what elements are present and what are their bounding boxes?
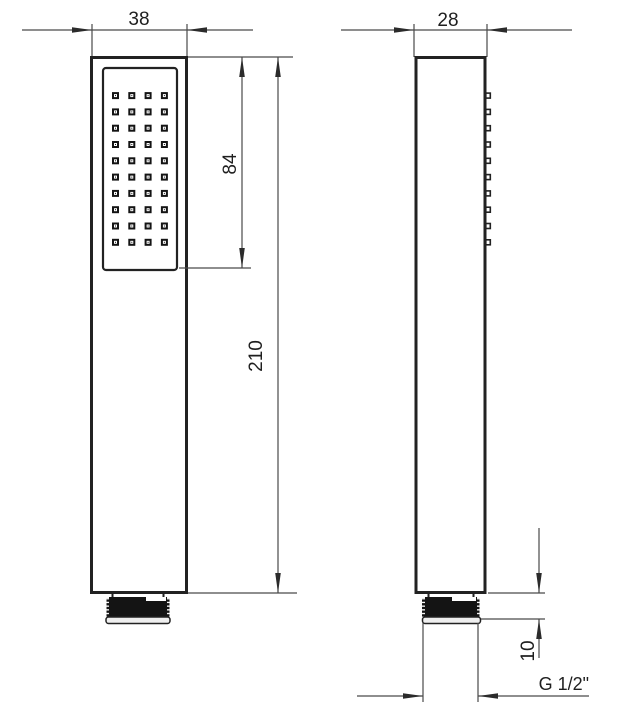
nozzle-center xyxy=(164,226,165,227)
arrowhead-down-icon xyxy=(239,248,245,268)
nozzle-center xyxy=(131,95,132,96)
nozzle-center xyxy=(131,144,132,145)
nozzle-center xyxy=(148,111,149,112)
arrowhead-left-icon xyxy=(487,27,507,33)
thread-end-cap xyxy=(423,617,481,624)
nozzle-center xyxy=(115,95,116,96)
nozzle-bump xyxy=(486,93,491,98)
arrowhead-up-icon xyxy=(536,619,542,639)
nozzle-center xyxy=(164,177,165,178)
nozzle-center xyxy=(115,128,116,129)
arrowhead-left-icon xyxy=(478,693,498,699)
nozzle-center xyxy=(115,209,116,210)
side-thread-spec-label: G 1/2" xyxy=(539,674,589,694)
arrowhead-up-icon xyxy=(275,57,281,77)
side-thread-length-label: 10 xyxy=(518,640,539,661)
side-view: 28 10 xyxy=(341,10,589,702)
nozzle-bump xyxy=(486,126,491,131)
nozzle-center xyxy=(148,128,149,129)
nozzle-center xyxy=(115,177,116,178)
nozzle-center xyxy=(148,242,149,243)
front-width-label: 38 xyxy=(128,9,149,30)
nozzle-center xyxy=(164,144,165,145)
nozzle-center xyxy=(164,193,165,194)
arrowhead-down-icon xyxy=(275,573,281,593)
nozzle-center xyxy=(131,226,132,227)
side-body-outline xyxy=(416,58,485,593)
nozzle-center xyxy=(115,193,116,194)
nozzle-center xyxy=(164,95,165,96)
nozzle-center xyxy=(164,111,165,112)
nozzle-center xyxy=(115,226,116,227)
nozzle-center xyxy=(115,111,116,112)
nozzle-bump xyxy=(486,142,491,147)
nozzle-center xyxy=(131,128,132,129)
nozzle-center xyxy=(148,144,149,145)
nozzle-bump xyxy=(486,158,491,163)
nozzle-center xyxy=(148,209,149,210)
nozzle-center xyxy=(148,177,149,178)
nozzle-center xyxy=(131,177,132,178)
arrowhead-right-icon xyxy=(403,693,423,699)
thread-highlight xyxy=(452,597,476,601)
thread-teeth-left xyxy=(422,598,425,618)
side-depth-label: 28 xyxy=(437,10,458,31)
nozzle-center xyxy=(164,242,165,243)
nozzle-bump xyxy=(486,224,491,229)
nozzle-center xyxy=(131,193,132,194)
nozzle-center xyxy=(131,209,132,210)
nozzle-center xyxy=(148,193,149,194)
nozzle-center xyxy=(115,242,116,243)
nozzle-center xyxy=(164,209,165,210)
nozzle-center xyxy=(164,160,165,161)
nozzle-center xyxy=(131,242,132,243)
nozzle-center xyxy=(164,128,165,129)
nozzle-bump xyxy=(486,240,491,245)
arrowhead-left-icon xyxy=(187,27,207,33)
thread-end-cap xyxy=(106,617,170,624)
arrowhead-down-icon xyxy=(536,573,542,593)
drawing-canvas: 38 84 210 xyxy=(0,0,637,728)
nozzle-center xyxy=(115,160,116,161)
front-total-length-label: 210 xyxy=(246,340,267,372)
side-thread-length-dimension xyxy=(481,528,545,658)
arrowhead-right-icon xyxy=(394,27,414,33)
nozzle-center xyxy=(131,111,132,112)
side-thread-connector xyxy=(422,593,481,624)
thread-highlight xyxy=(146,597,166,601)
nozzle-center xyxy=(148,160,149,161)
nozzle-center xyxy=(131,160,132,161)
arrowhead-right-icon xyxy=(72,27,92,33)
nozzle-center xyxy=(148,226,149,227)
arrowhead-up-icon xyxy=(239,57,245,77)
nozzle-bump xyxy=(486,207,491,212)
nozzle-center xyxy=(148,95,149,96)
nozzle-bump xyxy=(486,175,491,180)
nozzle-bump xyxy=(486,109,491,114)
nozzle-center xyxy=(115,144,116,145)
front-thread-connector xyxy=(106,593,170,624)
shower-head-technical-drawing: 38 84 210 xyxy=(0,0,637,728)
nozzle-bump xyxy=(486,191,491,196)
front-face-length-label: 84 xyxy=(220,153,241,175)
front-view: 38 84 210 xyxy=(22,9,297,624)
